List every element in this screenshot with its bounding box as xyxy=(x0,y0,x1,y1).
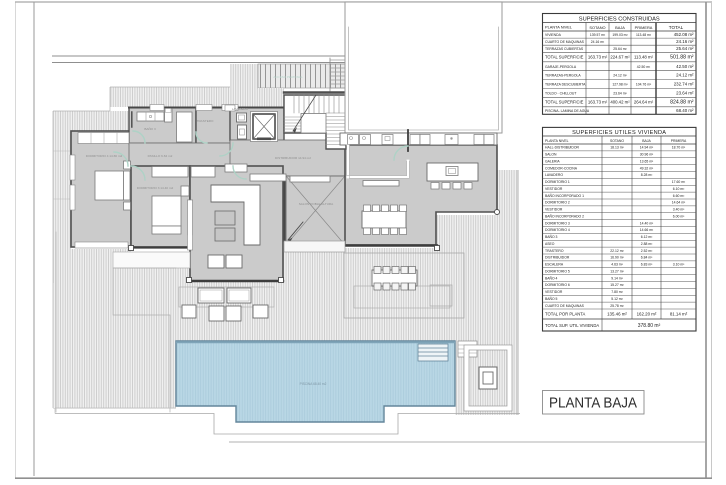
svg-text:LAVADERO: LAVADERO xyxy=(545,173,563,177)
svg-text:VIVIENDA: VIVIENDA xyxy=(545,33,562,37)
svg-text:CUARTO DE MAQUINAS: CUARTO DE MAQUINAS xyxy=(545,304,585,308)
svg-text:SALON DOBLE ALTURA: SALON DOBLE ALTURA xyxy=(299,202,334,206)
svg-text:BAÑO 4: BAÑO 4 xyxy=(545,275,558,280)
svg-text:378.80 m²: 378.80 m² xyxy=(638,323,661,329)
svg-text:6.84 m²: 6.84 m² xyxy=(641,256,653,260)
svg-text:14.64 m²: 14.64 m² xyxy=(672,201,686,205)
svg-text:23.64 m²: 23.64 m² xyxy=(613,91,627,95)
svg-text:SOTANO: SOTANO xyxy=(610,139,624,143)
svg-text:7.80 m²: 7.80 m² xyxy=(611,290,623,294)
svg-text:25.64 m²: 25.64 m² xyxy=(676,46,694,51)
svg-text:ESCALERA: ESCALERA xyxy=(545,263,564,267)
svg-text:TERRAZA DESCUBIERTA: TERRAZA DESCUBIERTA xyxy=(545,83,586,87)
svg-text:TOTAL POR PLANTA: TOTAL POR PLANTA xyxy=(545,312,586,317)
svg-text:6.10 m²: 6.10 m² xyxy=(673,187,685,191)
svg-text:824.88 m²: 824.88 m² xyxy=(670,100,694,106)
svg-text:16.90 m²: 16.90 m² xyxy=(610,256,624,260)
svg-text:15.27 m²: 15.27 m² xyxy=(610,283,624,287)
svg-text:24.12 m²: 24.12 m² xyxy=(676,73,694,78)
svg-text:14.94 m²: 14.94 m² xyxy=(640,146,654,150)
svg-text:49.32 m²: 49.32 m² xyxy=(640,166,654,170)
svg-text:BAÑO INCORPORADO 1: BAÑO INCORPORADO 1 xyxy=(545,193,584,198)
svg-text:113.48 m²: 113.48 m² xyxy=(636,33,652,37)
svg-text:DISTRIBUIDOR 14.94 m2: DISTRIBUIDOR 14.94 m2 xyxy=(275,156,311,160)
svg-text:81.14 m²: 81.14 m² xyxy=(670,312,688,317)
svg-text:162.20 m²: 162.20 m² xyxy=(637,312,657,317)
svg-text:TERRAZAS CUBIERTAS: TERRAZAS CUBIERTAS xyxy=(545,47,584,51)
svg-text:42.50 m²: 42.50 m² xyxy=(637,65,651,69)
svg-text:VESTIDOR: VESTIDOR xyxy=(545,187,563,191)
svg-text:TRASTERO: TRASTERO xyxy=(545,249,564,253)
svg-text:GARAJE-PERGOLA: GARAJE-PERGOLA xyxy=(545,65,577,69)
svg-text:DORMITORIO 5: DORMITORIO 5 xyxy=(545,270,570,274)
svg-text:24.16 m²: 24.16 m² xyxy=(591,40,605,44)
svg-text:SUPERFICIES CONSTRUIDAS: SUPERFICIES CONSTRUIDAS xyxy=(579,16,660,22)
svg-text:TRASTERO: TRASTERO xyxy=(197,119,214,123)
svg-text:14.66 m²: 14.66 m² xyxy=(640,228,654,232)
svg-text:25.78 m²: 25.78 m² xyxy=(610,304,624,308)
svg-text:DORMITORIO 3: DORMITORIO 3 xyxy=(545,221,570,225)
svg-text:VESTIDOR: VESTIDOR xyxy=(545,208,563,212)
svg-text:TERRAZAS-PERGOLA: TERRAZAS-PERGOLA xyxy=(545,74,581,78)
svg-text:22.12 m²: 22.12 m² xyxy=(610,249,624,253)
svg-text:DISTRIBUIDOR: DISTRIBUIDOR xyxy=(545,256,570,260)
svg-text:199.03 m²: 199.03 m² xyxy=(612,33,628,37)
svg-text:BAÑO 5: BAÑO 5 xyxy=(545,296,558,301)
svg-text:139.57 m²: 139.57 m² xyxy=(590,33,606,37)
svg-text:25.64 m²: 25.64 m² xyxy=(613,47,627,51)
svg-text:224.67 m²: 224.67 m² xyxy=(610,55,630,60)
svg-text:HALL-DISTRIBUIDOR: HALL-DISTRIBUIDOR xyxy=(545,146,579,150)
svg-text:14.40 m²: 14.40 m² xyxy=(640,221,654,225)
svg-text:135.46 m²: 135.46 m² xyxy=(607,312,627,317)
svg-text:TOTAL SUP. UTIL VIVIENDA: TOTAL SUP. UTIL VIVIENDA xyxy=(545,323,599,328)
svg-text:PRIMERA: PRIMERA xyxy=(671,139,687,143)
svg-text:2.88 m²: 2.88 m² xyxy=(641,242,653,246)
svg-text:104.76 m²: 104.76 m² xyxy=(636,83,652,87)
svg-text:5.12 m²: 5.12 m² xyxy=(611,297,623,301)
svg-text:BAÑO INCORPORADO 2: BAÑO INCORPORADO 2 xyxy=(545,214,584,219)
svg-text:BAJA: BAJA xyxy=(615,25,625,30)
svg-text:264.64 m²: 264.64 m² xyxy=(634,100,654,105)
svg-text:400.42 m²: 400.42 m² xyxy=(610,100,630,105)
svg-text:18.70 m²: 18.70 m² xyxy=(672,146,686,150)
svg-text:42.50 m²: 42.50 m² xyxy=(676,64,694,69)
svg-text:PRIMERA: PRIMERA xyxy=(635,25,653,30)
svg-text:DORMITORIO 3 14.40 m2: DORMITORIO 3 14.40 m2 xyxy=(137,186,174,190)
svg-text:PISCINA- LAMINA DE AGUA: PISCINA- LAMINA DE AGUA xyxy=(545,109,590,113)
svg-text:2.52 m²: 2.52 m² xyxy=(641,249,653,253)
svg-text:4.63 m²: 4.63 m² xyxy=(611,263,623,267)
svg-text:CUARTO DE MAQUINAS: CUARTO DE MAQUINAS xyxy=(545,40,585,44)
svg-text:8.28 m²: 8.28 m² xyxy=(641,173,653,177)
svg-text:6.12 m²: 6.12 m² xyxy=(641,235,653,239)
svg-text:BAJA: BAJA xyxy=(642,139,651,143)
svg-text:LAVADERO: LAVADERO xyxy=(232,107,249,111)
svg-text:163.73 m²: 163.73 m² xyxy=(588,55,608,60)
svg-text:24.12 m²: 24.12 m² xyxy=(613,74,627,78)
svg-text:13.65 m²: 13.65 m² xyxy=(640,160,654,164)
svg-text:PLANTA NIVEL: PLANTA NIVEL xyxy=(545,139,569,143)
svg-text:113.48 m²: 113.48 m² xyxy=(634,55,654,60)
svg-text:VESTIDOR: VESTIDOR xyxy=(545,290,563,294)
svg-text:TOTAL: TOTAL xyxy=(669,25,684,30)
svg-text:17.60 m²: 17.60 m² xyxy=(672,180,686,184)
svg-text:DORMITORIO 6: DORMITORIO 6 xyxy=(545,283,570,287)
svg-text:24.16 m²: 24.16 m² xyxy=(676,39,694,44)
svg-text:SUPERFICIES UTILES VIVIENDA: SUPERFICIES UTILES VIVIENDA xyxy=(572,130,666,136)
svg-text:TOLDO - CHILLOUT: TOLDO - CHILLOUT xyxy=(545,91,576,95)
svg-text:TOTAL SUPERFICIE: TOTAL SUPERFICIE xyxy=(545,100,584,105)
svg-text:DORMITORIO 2: DORMITORIO 2 xyxy=(545,201,570,205)
svg-text:DORMITORIO 4: DORMITORIO 4 xyxy=(545,228,570,232)
svg-text:ASEO: ASEO xyxy=(545,242,555,246)
svg-text:232.74 m²: 232.74 m² xyxy=(674,82,694,87)
svg-text:PLANTA BAJA: PLANTA BAJA xyxy=(549,396,637,412)
svg-text:PLANTA NIVEL: PLANTA NIVEL xyxy=(545,25,573,30)
svg-text:PISCINA 68.40 m2: PISCINA 68.40 m2 xyxy=(300,382,327,386)
svg-text:30.96 m²: 30.96 m² xyxy=(640,153,654,157)
svg-text:501.88 m²: 501.88 m² xyxy=(670,55,694,61)
svg-text:TOTAL SUPERFICIE: TOTAL SUPERFICIE xyxy=(545,55,584,60)
svg-text:BAÑO 3: BAÑO 3 xyxy=(545,234,558,239)
svg-text:18.13 m²: 18.13 m² xyxy=(610,146,624,150)
svg-text:DORMITORIO 4 14.66 m2: DORMITORIO 4 14.66 m2 xyxy=(86,154,123,158)
svg-text:13.27 m²: 13.27 m² xyxy=(610,270,624,274)
svg-text:ACCESO PEATONAL: ACCESO PEATONAL xyxy=(273,75,303,79)
svg-text:GALERIA: GALERIA xyxy=(545,160,560,164)
svg-text:127.98 m²: 127.98 m² xyxy=(612,83,628,87)
svg-text:163.73 m²: 163.73 m² xyxy=(588,100,608,105)
svg-text:PASILLO 6.84 m2: PASILLO 6.84 m2 xyxy=(148,154,173,158)
svg-text:6.60 m²: 6.60 m² xyxy=(673,194,685,198)
svg-text:BAÑO 3: BAÑO 3 xyxy=(144,126,156,131)
svg-text:SOTANO: SOTANO xyxy=(589,25,605,30)
svg-text:9.14 m²: 9.14 m² xyxy=(611,276,623,280)
svg-text:3.40 m²: 3.40 m² xyxy=(673,208,685,212)
svg-text:23.64 m²: 23.64 m² xyxy=(676,90,694,95)
svg-text:6.83 m²: 6.83 m² xyxy=(641,263,653,267)
svg-text:DORMITORIO 1: DORMITORIO 1 xyxy=(545,180,570,184)
svg-text:COMEDOR-COCINA: COMEDOR-COCINA xyxy=(545,166,578,170)
svg-text:SALON: SALON xyxy=(545,153,557,157)
svg-text:6.00 m²: 6.00 m² xyxy=(673,215,685,219)
svg-text:68.40 m²: 68.40 m² xyxy=(676,108,694,113)
svg-text:3.10 m²: 3.10 m² xyxy=(673,263,685,267)
svg-text:452.08 m²: 452.08 m² xyxy=(674,32,694,37)
